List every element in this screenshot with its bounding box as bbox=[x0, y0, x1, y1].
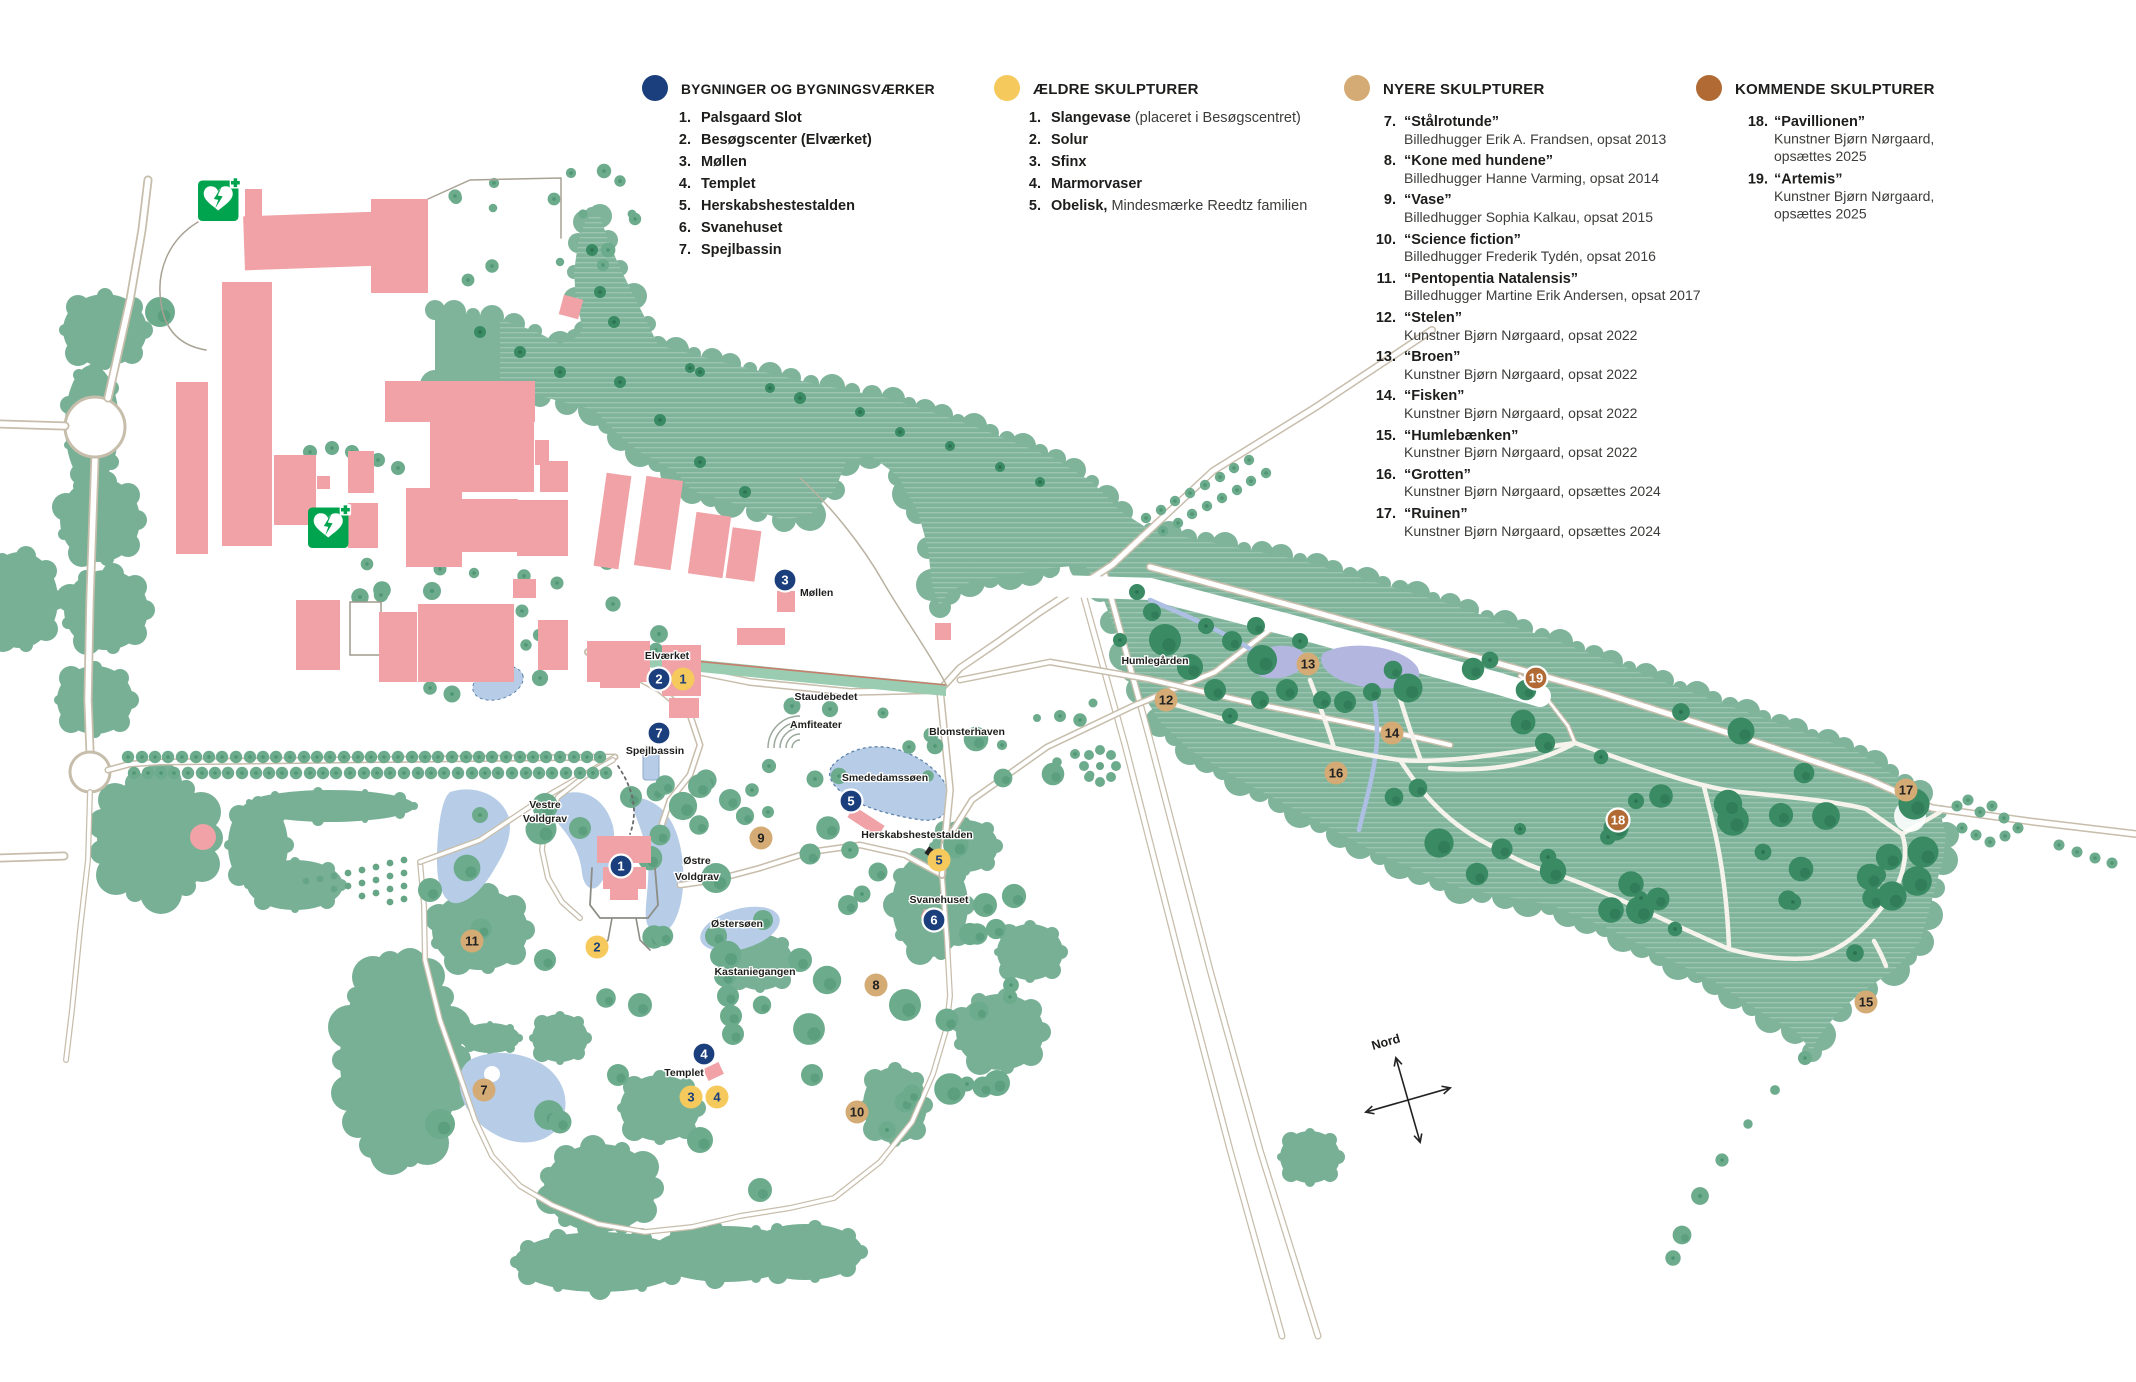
svg-text:“Pavillionen”: “Pavillionen” bbox=[1774, 114, 1865, 130]
svg-text:Kunstner Bjørn Nørgaard,: Kunstner Bjørn Nørgaard, bbox=[1774, 188, 1934, 204]
svg-text:Billedhugger Hanne Varming, op: Billedhugger Hanne Varming, opsat 2014 bbox=[1404, 170, 1659, 186]
svg-text:4: 4 bbox=[713, 1090, 721, 1105]
svg-text:Kunstner Bjørn Nørgaard, opsæt: Kunstner Bjørn Nørgaard, opsættes 2024 bbox=[1404, 523, 1661, 539]
svg-text:8.: 8. bbox=[1384, 153, 1396, 169]
svg-text:Kunstner Bjørn Nørgaard, opsat: Kunstner Bjørn Nørgaard, opsat 2022 bbox=[1404, 327, 1638, 343]
svg-text:2.: 2. bbox=[679, 132, 691, 148]
svg-text:Spejlbassin: Spejlbassin bbox=[626, 745, 684, 757]
svg-text:“Grotten”: “Grotten” bbox=[1404, 467, 1471, 483]
svg-text:5: 5 bbox=[847, 794, 854, 809]
svg-text:Vestre: Vestre bbox=[529, 799, 561, 811]
svg-text:13: 13 bbox=[1301, 657, 1315, 672]
svg-text:4: 4 bbox=[700, 1047, 708, 1062]
svg-text:7.: 7. bbox=[679, 242, 691, 258]
svg-text:14: 14 bbox=[1385, 726, 1400, 741]
svg-text:Marmorvaser: Marmorvaser bbox=[1051, 176, 1142, 192]
svg-text:3.: 3. bbox=[1029, 154, 1041, 170]
svg-text:Templet: Templet bbox=[701, 176, 756, 192]
svg-text:3: 3 bbox=[781, 573, 788, 588]
svg-text:KOMMENDE SKULPTURER: KOMMENDE SKULPTURER bbox=[1735, 81, 1935, 98]
svg-text:Kunstner Bjørn Nørgaard, opsat: Kunstner Bjørn Nørgaard, opsat 2022 bbox=[1404, 366, 1638, 382]
svg-text:“Artemis”: “Artemis” bbox=[1774, 172, 1843, 188]
svg-text:Kunstner Bjørn Nørgaard, opsat: Kunstner Bjørn Nørgaard, opsat 2022 bbox=[1404, 444, 1638, 460]
svg-text:“Stålrotunde”: “Stålrotunde” bbox=[1404, 114, 1499, 130]
svg-text:5.: 5. bbox=[679, 198, 691, 214]
svg-text:Staudebedet: Staudebedet bbox=[794, 691, 858, 703]
svg-text:Svanehuset: Svanehuset bbox=[910, 894, 969, 906]
svg-text:19: 19 bbox=[1529, 671, 1543, 686]
svg-text:4.: 4. bbox=[679, 176, 691, 192]
svg-text:Blomsterhaven: Blomsterhaven bbox=[929, 726, 1005, 738]
svg-text:2.: 2. bbox=[1029, 132, 1041, 148]
svg-text:Kastaniegangen: Kastaniegangen bbox=[714, 966, 795, 978]
svg-text:3.: 3. bbox=[679, 154, 691, 170]
svg-text:“Stelen”: “Stelen” bbox=[1404, 310, 1462, 326]
svg-text:9.: 9. bbox=[1384, 192, 1396, 208]
svg-text:19.: 19. bbox=[1748, 172, 1768, 188]
svg-text:Herskabshestestalden: Herskabshestestalden bbox=[701, 198, 855, 214]
svg-text:5.: 5. bbox=[1029, 198, 1041, 214]
svg-text:1: 1 bbox=[679, 672, 686, 687]
svg-text:6.: 6. bbox=[679, 220, 691, 236]
svg-text:1.: 1. bbox=[679, 110, 691, 126]
svg-text:Voldgrav: Voldgrav bbox=[675, 871, 719, 883]
svg-text:16: 16 bbox=[1329, 766, 1343, 781]
svg-text:1: 1 bbox=[617, 859, 624, 874]
svg-text:Billedhugger Frederik Tydén, o: Billedhugger Frederik Tydén, opsat 2016 bbox=[1404, 248, 1656, 264]
svg-text:“Fisken”: “Fisken” bbox=[1404, 388, 1464, 404]
svg-text:Østre: Østre bbox=[683, 855, 711, 867]
svg-text:“Broen”: “Broen” bbox=[1404, 349, 1460, 365]
svg-text:opsættes 2025: opsættes 2025 bbox=[1774, 206, 1867, 222]
svg-text:15.: 15. bbox=[1376, 428, 1396, 444]
svg-text:Obelisk, Mindesmærke Reedtz fa: Obelisk, Mindesmærke Reedtz familien bbox=[1051, 198, 1307, 214]
svg-text:5: 5 bbox=[935, 853, 942, 868]
svg-text:7.: 7. bbox=[1384, 114, 1396, 130]
svg-text:Kunstner Bjørn Nørgaard, opsæt: Kunstner Bjørn Nørgaard, opsættes 2024 bbox=[1404, 483, 1661, 499]
svg-text:opsættes 2025: opsættes 2025 bbox=[1774, 148, 1867, 164]
svg-text:BYGNINGER OG BYGNINGSVÆRKER: BYGNINGER OG BYGNINGSVÆRKER bbox=[681, 82, 935, 97]
svg-text:4.: 4. bbox=[1029, 176, 1041, 192]
svg-text:Elværket: Elværket bbox=[645, 650, 690, 662]
svg-text:“Ruinen”: “Ruinen” bbox=[1404, 506, 1468, 522]
svg-text:7: 7 bbox=[480, 1083, 487, 1098]
svg-text:Templet: Templet bbox=[664, 1067, 704, 1079]
svg-text:“Science fiction”: “Science fiction” bbox=[1404, 232, 1521, 248]
svg-text:Møllen: Møllen bbox=[800, 587, 833, 599]
svg-text:Billedhugger Erik A. Frandsen,: Billedhugger Erik A. Frandsen, opsat 201… bbox=[1404, 131, 1666, 147]
svg-text:Besøgscenter (Elværket): Besøgscenter (Elværket) bbox=[701, 132, 872, 148]
svg-text:14.: 14. bbox=[1376, 388, 1396, 404]
svg-text:2: 2 bbox=[593, 940, 600, 955]
svg-text:13.: 13. bbox=[1376, 349, 1396, 365]
svg-text:2: 2 bbox=[655, 672, 662, 687]
svg-text:3: 3 bbox=[687, 1090, 694, 1105]
svg-text:18: 18 bbox=[1611, 813, 1625, 828]
svg-text:8: 8 bbox=[872, 978, 879, 993]
svg-text:Slangevase (placeret i Besøgsc: Slangevase (placeret i Besøgscentret) bbox=[1051, 110, 1301, 126]
svg-text:12.: 12. bbox=[1376, 310, 1396, 326]
svg-text:Østersøen: Østersøen bbox=[711, 918, 763, 930]
svg-text:Voldgrav: Voldgrav bbox=[523, 813, 567, 825]
svg-text:9: 9 bbox=[757, 831, 764, 846]
svg-text:6: 6 bbox=[930, 913, 937, 928]
svg-text:“Humlebænken”: “Humlebænken” bbox=[1404, 428, 1518, 444]
svg-text:Humlegården: Humlegården bbox=[1121, 655, 1188, 667]
svg-text:17: 17 bbox=[1899, 783, 1913, 798]
svg-text:Palsgaard Slot: Palsgaard Slot bbox=[701, 110, 802, 126]
svg-text:15: 15 bbox=[1859, 995, 1873, 1010]
svg-text:10: 10 bbox=[850, 1105, 864, 1120]
svg-text:Herskabshestestalden: Herskabshestestalden bbox=[861, 829, 972, 841]
svg-text:7: 7 bbox=[655, 726, 662, 741]
svg-text:10.: 10. bbox=[1376, 232, 1396, 248]
svg-text:11.: 11. bbox=[1377, 271, 1396, 287]
svg-text:12: 12 bbox=[1159, 693, 1173, 708]
svg-text:Solur: Solur bbox=[1051, 132, 1088, 148]
svg-text:Smededamssøen: Smededamssøen bbox=[842, 772, 928, 784]
svg-text:“Kone med hundene”: “Kone med hundene” bbox=[1404, 153, 1553, 169]
svg-text:Sfinx: Sfinx bbox=[1051, 154, 1086, 170]
svg-text:“Pentopentia Natalensis”: “Pentopentia Natalensis” bbox=[1404, 271, 1578, 287]
svg-text:NYERE SKULPTURER: NYERE SKULPTURER bbox=[1383, 81, 1545, 98]
svg-text:Spejlbassin: Spejlbassin bbox=[701, 242, 782, 258]
svg-text:Kunstner Bjørn Nørgaard,: Kunstner Bjørn Nørgaard, bbox=[1774, 131, 1934, 147]
svg-text:Kunstner Bjørn Nørgaard, opsat: Kunstner Bjørn Nørgaard, opsat 2022 bbox=[1404, 405, 1638, 421]
svg-text:ÆLDRE SKULPTURER: ÆLDRE SKULPTURER bbox=[1033, 81, 1199, 98]
svg-text:Amfiteater: Amfiteater bbox=[790, 719, 842, 731]
svg-text:Billedhugger Martine Erik Ande: Billedhugger Martine Erik Andersen, opsa… bbox=[1404, 287, 1701, 303]
svg-text:16.: 16. bbox=[1376, 467, 1396, 483]
svg-text:Billedhugger Sophia Kalkau, op: Billedhugger Sophia Kalkau, opsat 2015 bbox=[1404, 209, 1653, 225]
svg-text:Møllen: Møllen bbox=[701, 154, 747, 170]
svg-text:18.: 18. bbox=[1748, 114, 1768, 130]
svg-text:1.: 1. bbox=[1029, 110, 1041, 126]
svg-text:17.: 17. bbox=[1376, 506, 1396, 522]
svg-text:Svanehuset: Svanehuset bbox=[701, 220, 783, 236]
svg-text:“Vase”: “Vase” bbox=[1404, 192, 1452, 208]
svg-text:11: 11 bbox=[465, 934, 479, 949]
